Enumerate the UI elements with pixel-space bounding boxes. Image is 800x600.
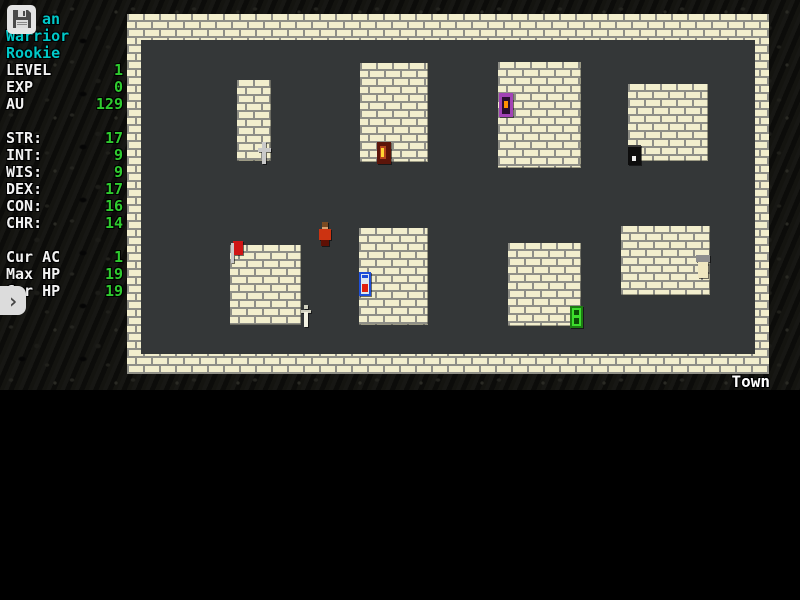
white-dagger-icon[interactable] [300, 303, 312, 327]
chr-value: 14 [105, 215, 123, 232]
str-label: STR: [6, 130, 42, 147]
gold-value: 129 [96, 96, 123, 113]
black-door-icon[interactable] [628, 145, 641, 165]
floppy-disk-icon [10, 19, 34, 34]
player-character-sprite[interactable] [318, 222, 332, 246]
game-scene: Town an Warrior Rookie LEVEL 1 EXP 0 AU … [0, 0, 800, 390]
gold-row: AU 129 [6, 96, 123, 113]
cur-hp-value: 19 [105, 283, 123, 300]
dex-label: DEX: [6, 181, 42, 198]
purple-door-icon[interactable] [499, 93, 513, 117]
int-value: 9 [114, 147, 123, 164]
con-row: CON: 16 [6, 198, 123, 215]
dex-value: 17 [105, 181, 123, 198]
character-rank: Rookie [6, 45, 123, 62]
int-label: INT: [6, 147, 42, 164]
cur-ac-row: Cur AC 1 [6, 249, 123, 266]
hud-spacer [6, 232, 123, 249]
exp-label: EXP [6, 79, 33, 96]
wis-row: WIS: 9 [6, 164, 123, 181]
red-torch-door-icon[interactable] [377, 142, 391, 164]
silver-cross-icon[interactable] [257, 140, 271, 166]
hud-spacer [6, 113, 123, 130]
exp-value: 0 [114, 79, 123, 96]
wis-value: 9 [114, 164, 123, 181]
town-map [127, 14, 769, 374]
chr-row: CHR: 14 [6, 215, 123, 232]
con-label: CON: [6, 198, 42, 215]
max-hp-label: Max HP [6, 266, 60, 283]
chr-label: CHR: [6, 215, 42, 232]
max-hp-value: 19 [105, 266, 123, 283]
max-hp-row: Max HP 19 [6, 266, 123, 283]
blue-potion-door-icon[interactable] [359, 272, 371, 296]
save-button[interactable] [7, 5, 36, 34]
str-value: 17 [105, 130, 123, 147]
red-flag-icon[interactable] [229, 241, 243, 263]
gold-label: AU [6, 96, 24, 113]
dex-row: DEX: 17 [6, 181, 123, 198]
level-value: 1 [114, 62, 123, 79]
location-label: Town [731, 372, 770, 391]
green-door-icon[interactable] [570, 306, 583, 328]
cur-ac-label: Cur AC [6, 249, 60, 266]
exp-row: EXP 0 [6, 79, 123, 96]
level-row: LEVEL 1 [6, 62, 123, 79]
gray-cap-figure-icon[interactable] [696, 255, 710, 278]
con-value: 16 [105, 198, 123, 215]
sidebar-expand-button[interactable]: › [0, 286, 26, 315]
wis-label: WIS: [6, 164, 42, 181]
building-roof [360, 63, 428, 162]
level-label: LEVEL [6, 62, 51, 79]
str-row: STR: 17 [6, 130, 123, 147]
hud-panel: an Warrior Rookie LEVEL 1 EXP 0 AU 129 S… [6, 11, 123, 300]
int-row: INT: 9 [6, 147, 123, 164]
cur-ac-value: 1 [114, 249, 123, 266]
